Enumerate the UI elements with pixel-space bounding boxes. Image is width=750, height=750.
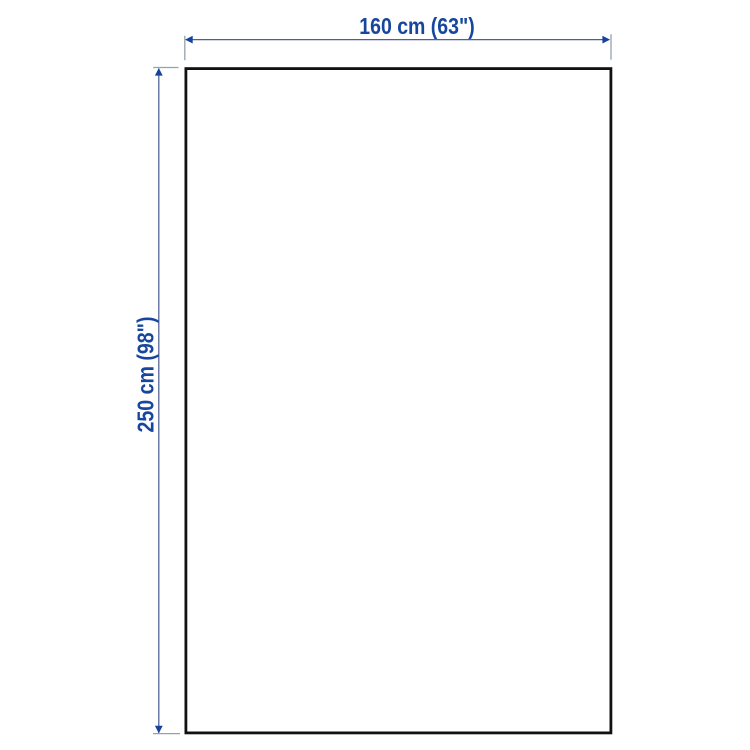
svg-text:250 cm (98"): 250 cm (98") <box>133 317 159 433</box>
svg-text:160 cm (63"): 160 cm (63") <box>359 13 475 39</box>
